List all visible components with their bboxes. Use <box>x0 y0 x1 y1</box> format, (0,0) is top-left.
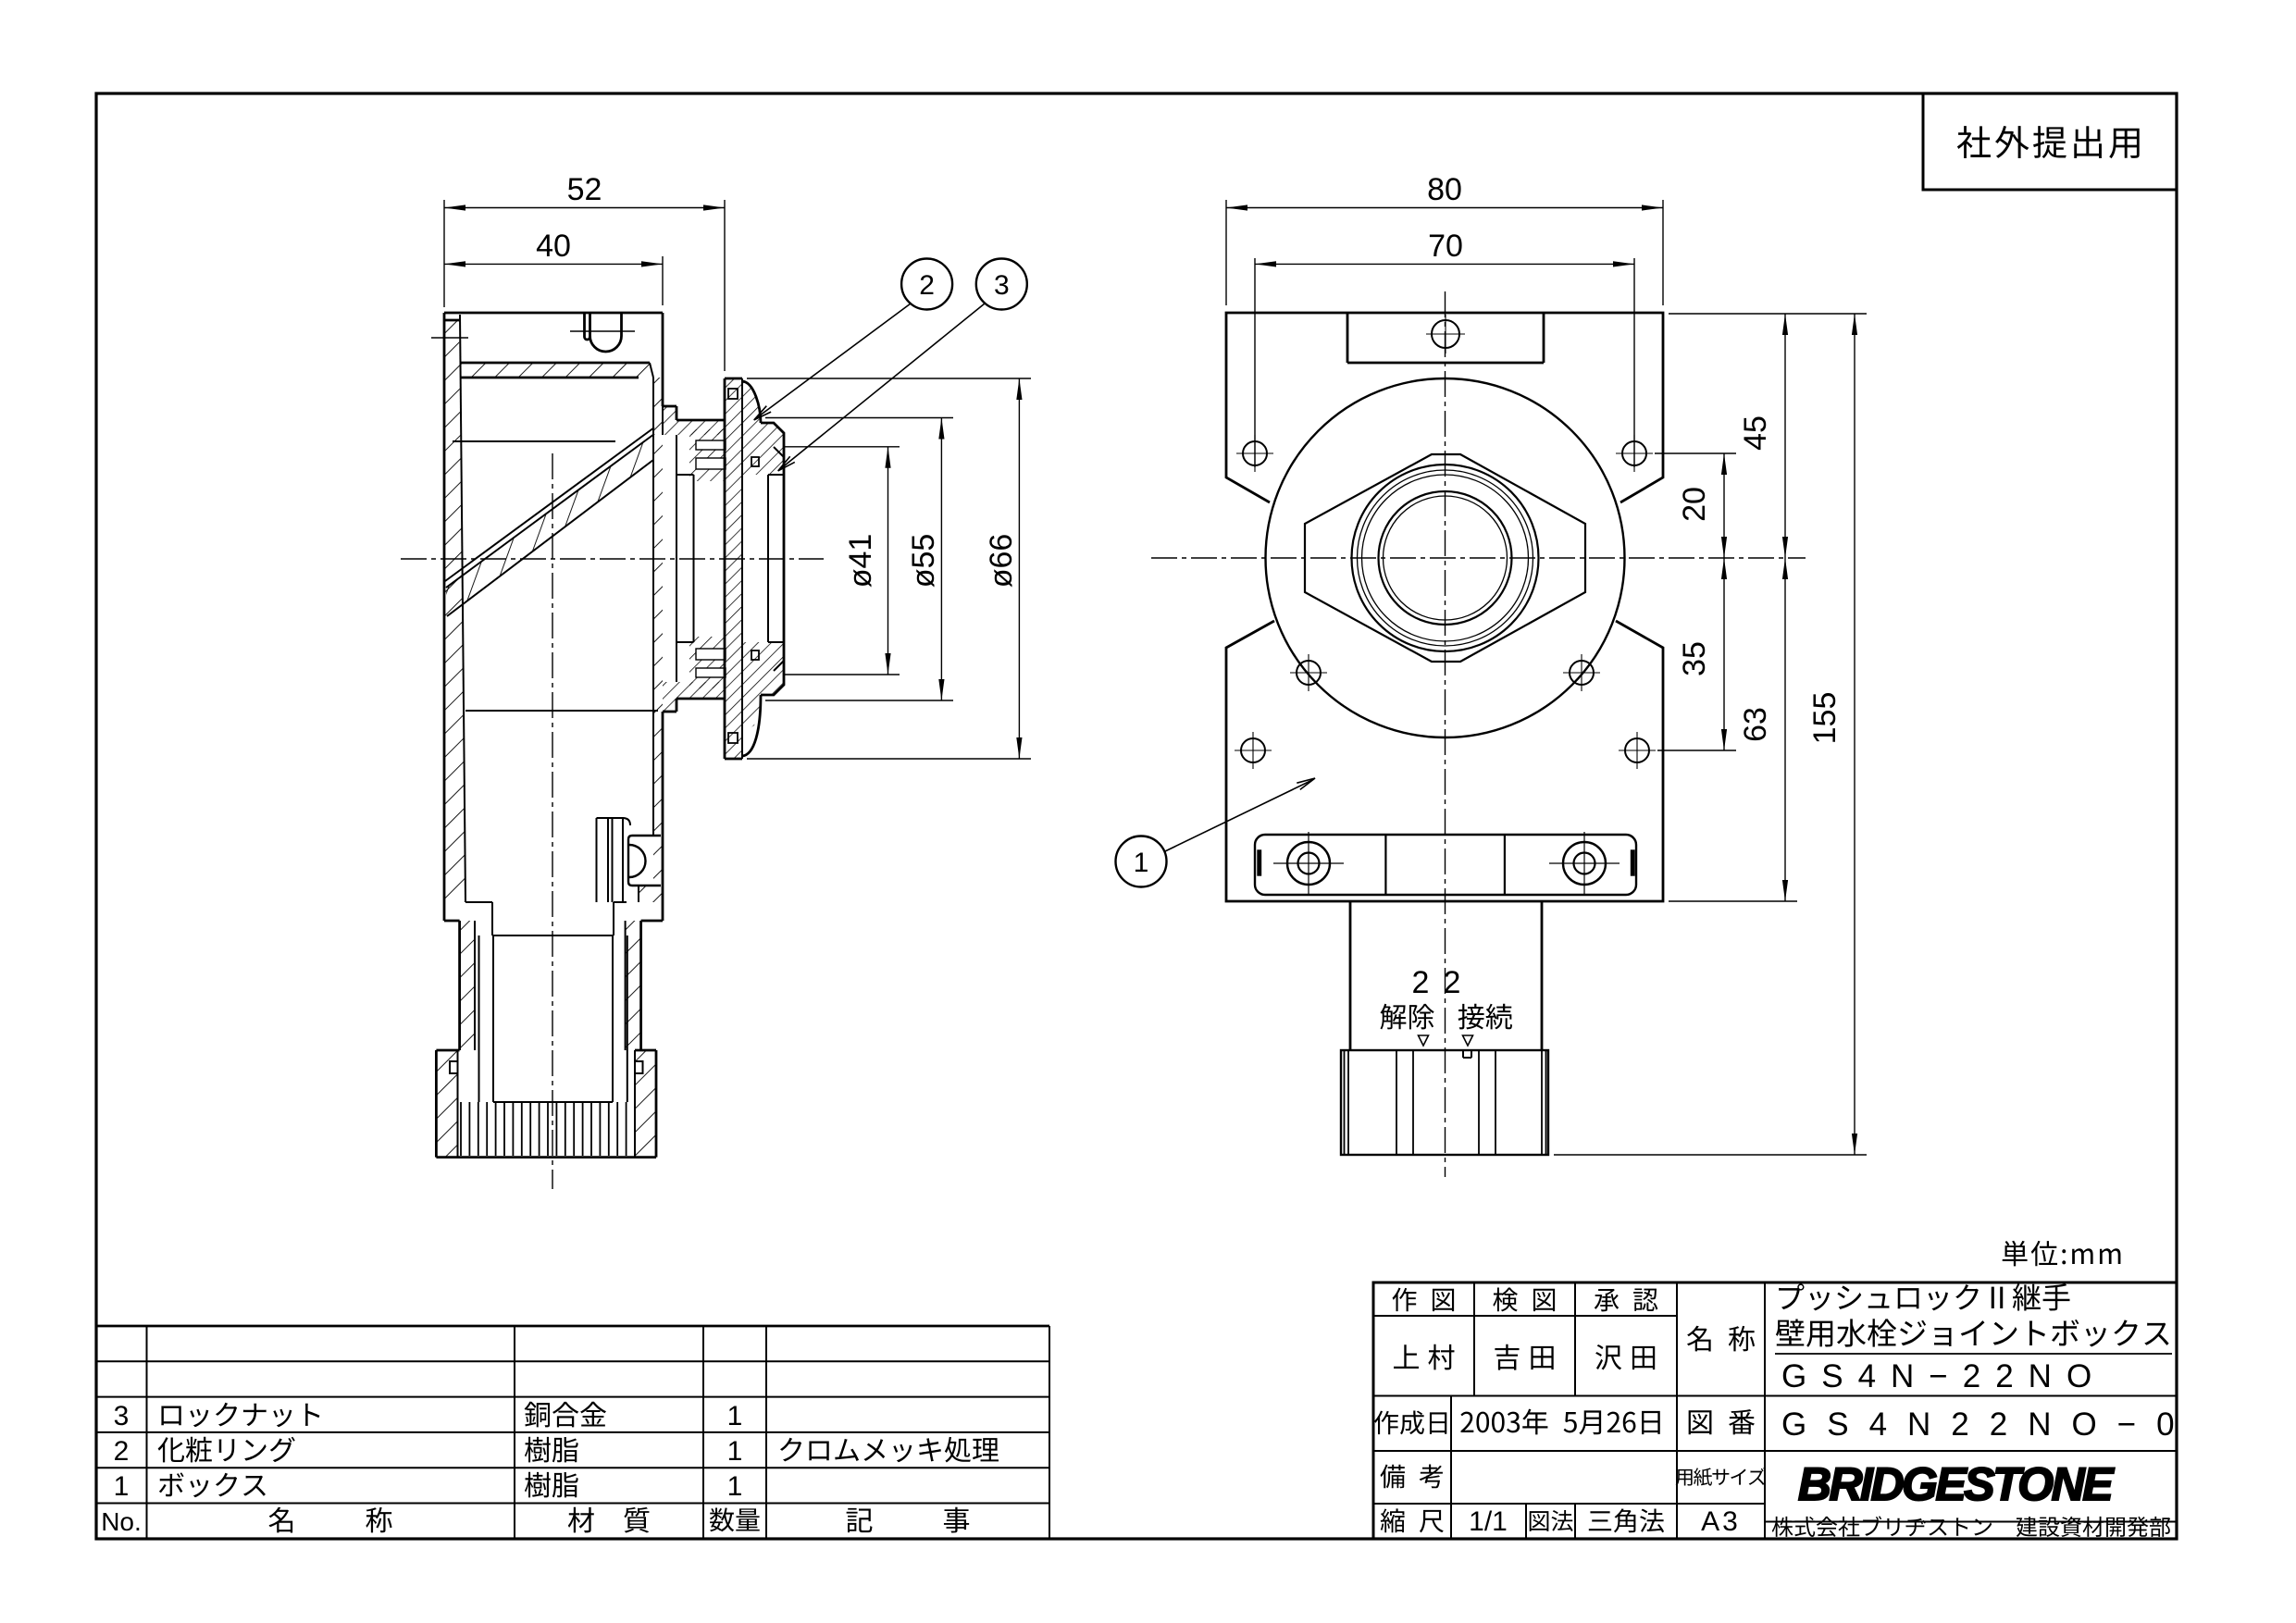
svg-text:20: 20 <box>1677 487 1712 522</box>
svg-text:3: 3 <box>994 270 1010 301</box>
svg-text:ø41: ø41 <box>843 534 878 588</box>
svg-text:GS4N22NO−0: GS4N22NO−0 <box>1781 1406 2195 1443</box>
svg-text:1: 1 <box>727 1471 743 1502</box>
svg-text:63: 63 <box>1738 707 1773 742</box>
svg-text:80: 80 <box>1427 172 1462 207</box>
svg-text:1/1: 1/1 <box>1469 1506 1508 1537</box>
svg-text:BRIDGESTONE: BRIDGESTONE <box>1798 1458 2115 1510</box>
svg-text:A3: A3 <box>1701 1506 1741 1537</box>
svg-text:155: 155 <box>1807 692 1843 745</box>
svg-text:2: 2 <box>114 1436 130 1467</box>
svg-text:2: 2 <box>1412 965 1430 1000</box>
svg-text:No.: No. <box>101 1507 142 1536</box>
svg-text:45: 45 <box>1738 415 1773 451</box>
svg-text:1: 1 <box>727 1401 743 1431</box>
svg-text:1: 1 <box>1134 848 1149 878</box>
svg-text:40: 40 <box>536 229 571 264</box>
svg-text:52: 52 <box>567 172 602 207</box>
svg-text:3: 3 <box>114 1401 130 1431</box>
svg-text:35: 35 <box>1677 641 1712 676</box>
svg-text:2: 2 <box>1444 965 1461 1000</box>
svg-text:70: 70 <box>1428 229 1463 264</box>
svg-text:GS4N−22NO: GS4N−22NO <box>1781 1358 2106 1394</box>
svg-text:1: 1 <box>114 1471 130 1502</box>
svg-text:1: 1 <box>727 1436 743 1467</box>
svg-text:ø55: ø55 <box>906 534 941 588</box>
svg-text:ø66: ø66 <box>984 534 1019 588</box>
svg-text:2: 2 <box>919 270 935 301</box>
